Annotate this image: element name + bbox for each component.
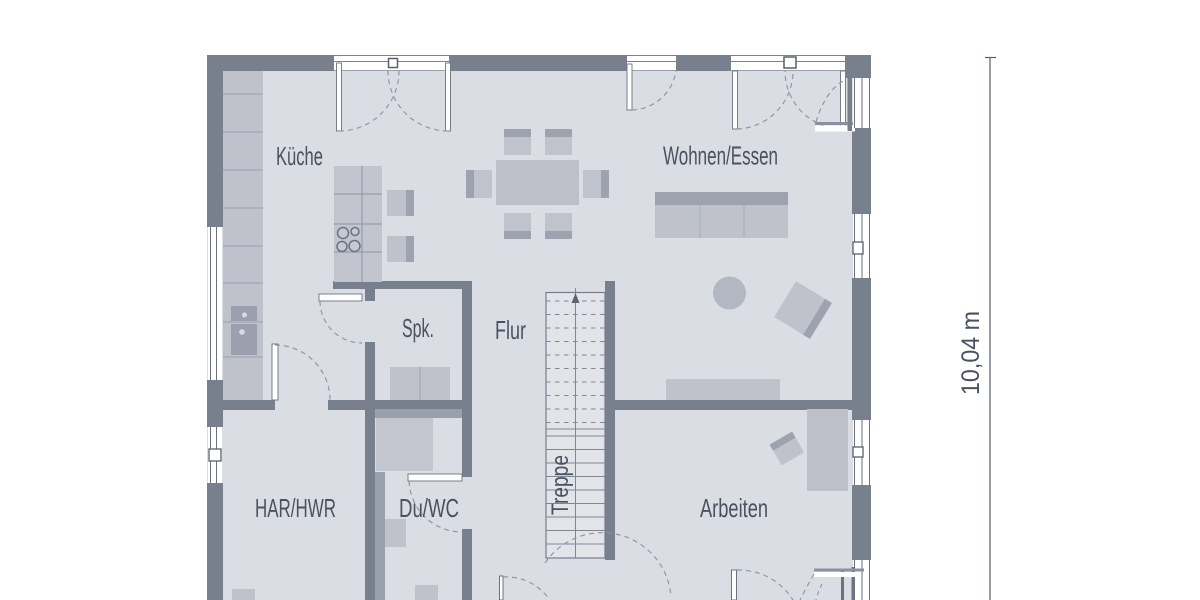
- svg-text:Küche: Küche: [276, 141, 323, 171]
- svg-text:HAR/HWR: HAR/HWR: [255, 493, 336, 523]
- svg-text:Du/WC: Du/WC: [399, 493, 459, 523]
- svg-text:10,04 m: 10,04 m: [957, 311, 985, 395]
- svg-text:Treppe: Treppe: [547, 455, 574, 515]
- svg-text:Wohnen/Essen: Wohnen/Essen: [663, 141, 778, 171]
- svg-text:Flur: Flur: [495, 315, 526, 345]
- svg-text:Arbeiten: Arbeiten: [700, 493, 768, 523]
- svg-text:Spk.: Spk.: [402, 313, 434, 343]
